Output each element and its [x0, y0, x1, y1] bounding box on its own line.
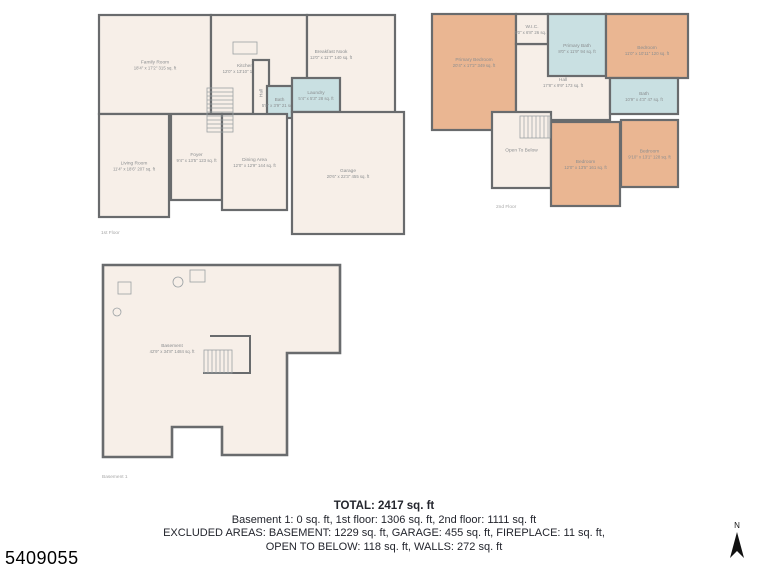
room-garage: Garage20'6" x 22'3" 455 sq. ft: [292, 112, 404, 234]
room-bath: Bath10'9" x 4'3" 47 sq. ft: [610, 78, 678, 114]
room-bedroom: Bedroom11'0" x 10'11" 120 sq. ft: [606, 14, 688, 78]
room-dims-label: 8'0" x 11'9" 94 sq. ft: [558, 49, 596, 54]
room-dims-label: 4'0" x 6'8" 26 sq. ft: [514, 30, 550, 35]
floorplan-second-floor: Primary Bedroom20'4" x 17'2" 349 sq. ftH…: [428, 10, 690, 219]
floorplan-svg: Primary Bedroom20'4" x 17'2" 349 sq. ftH…: [428, 10, 690, 214]
room-family-room: Family Room18'4" x 17'2" 315 sq. ft: [99, 15, 211, 114]
listing-id: 5409055: [5, 548, 79, 569]
room-name-label: Hall: [259, 89, 265, 97]
room-dims-label: 11'0" x 10'11" 120 sq. ft: [625, 51, 670, 56]
room-dims-label: 20'4" x 17'2" 349 sq. ft: [453, 63, 496, 68]
room-dims-label: 20'6" x 22'3" 455 sq. ft: [327, 174, 370, 179]
room-open-to-below: Open To Below: [492, 112, 551, 188]
room-dims-label: 18'4" x 17'2" 315 sq. ft: [134, 65, 177, 70]
floorplan-first-floor: Family Room18'4" x 17'2" 315 sq. ftKitch…: [95, 12, 417, 247]
floor-caption: 2nd Floor: [496, 204, 517, 210]
room-bedroom: Bedroom9'10" x 13'1" 128 sq. ft: [621, 120, 678, 187]
room-dims-label: 9'4" x 13'5" 123 sq. ft: [176, 158, 217, 163]
room-dims-label: 9'10" x 13'1" 128 sq. ft: [628, 154, 671, 159]
compass: N: [725, 521, 749, 565]
room-dims-label: 12'0" x 11'7" 140 sq. ft: [310, 55, 353, 60]
room-primary-bath: Primary Bath8'0" x 11'9" 94 sq. ft: [548, 14, 606, 76]
room-dining-area: Dining Area12'0" x 12'9" 144 sq. ft: [222, 114, 287, 210]
summary-total-line: TOTAL: 2417 sq. ft: [0, 500, 768, 514]
north-arrow-icon: [725, 530, 749, 560]
floorplan-page: Family Room18'4" x 17'2" 315 sq. ftKitch…: [0, 0, 768, 576]
floorplan-basement: Basement42'9" x 34'8" 1484 sq. ftBasemen…: [98, 258, 350, 491]
room-dims-label: 11'4" x 18'6" 207 sq. ft: [113, 166, 156, 171]
room-bedroom: Bedroom12'0" x 13'5" 161 sq. ft: [551, 122, 620, 206]
room-dims-label: 10'9" x 4'3" 47 sq. ft: [625, 97, 663, 102]
summary-excluded-line-1: EXCLUDED AREAS: BASEMENT: 1229 sq. ft, G…: [0, 527, 768, 541]
room-dims-label: 42'9" x 34'8" 1484 sq. ft: [150, 349, 196, 354]
compass-n-label: N: [725, 521, 749, 530]
summary-excluded-line-2: OPEN TO BELOW: 118 sq. ft, WALLS: 272 sq…: [0, 541, 768, 555]
summary-floors-line: Basement 1: 0 sq. ft, 1st floor: 1306 sq…: [0, 514, 768, 528]
room-dims-label: 5'4" x 5'3" 28 sq. ft: [298, 96, 334, 101]
floor-caption: 1st Floor: [101, 230, 120, 236]
room-laundry: Laundry5'4" x 5'3" 28 sq. ft: [292, 78, 340, 112]
floor-outline: [103, 265, 340, 457]
room-foyer: Foyer9'4" x 13'5" 123 sq. ft: [171, 114, 222, 200]
floor-caption: Basement 1: [102, 474, 128, 480]
room-dims-label: 12'0" x 12'9" 144 sq. ft: [233, 163, 276, 168]
room-name-label: Open To Below: [505, 148, 538, 154]
floorplan-svg: Family Room18'4" x 17'2" 315 sq. ftKitch…: [95, 12, 417, 242]
room-living-room: Living Room11'4" x 18'6" 207 sq. ft: [99, 114, 169, 217]
room-w-i-c: W.I.C.4'0" x 6'8" 26 sq. ft: [514, 14, 550, 44]
floorplan-svg: Basement42'9" x 34'8" 1484 sq. ftBasemen…: [98, 258, 350, 486]
room-dims-label: 12'0" x 13'5" 161 sq. ft: [564, 165, 607, 170]
area-summary: TOTAL: 2417 sq. ft Basement 1: 0 sq. ft,…: [0, 500, 768, 554]
room-dims-label: 17'8" x 9'9" 173 sq. ft: [543, 83, 584, 88]
